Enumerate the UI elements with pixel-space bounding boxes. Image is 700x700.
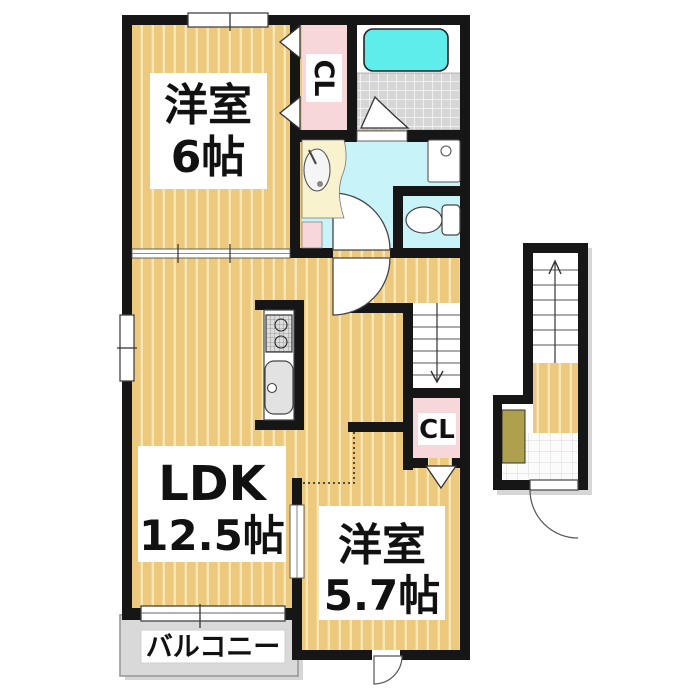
closet-label: CL: [308, 59, 339, 96]
bathtub: [364, 29, 448, 71]
wall: [348, 422, 403, 432]
outer-wall-left: [122, 380, 132, 620]
window: [188, 13, 268, 27]
bath-door-opening: [357, 131, 407, 141]
floor-plan-drawing: 洋室 6帖 LDK 12.5帖 洋室 5.7帖 CL CL バルコニー: [0, 0, 700, 700]
genkan-tile: [525, 433, 578, 480]
outer-wall-bottom: [292, 650, 372, 660]
outer-wall-left: [122, 15, 132, 317]
outer-wall-right: [460, 15, 470, 660]
wall: [390, 248, 470, 258]
room-size-label: 6帖: [171, 132, 246, 183]
toilet-tank: [442, 205, 460, 235]
wall: [292, 578, 302, 650]
entry-door-leaf: [530, 480, 578, 490]
room-size-label: 12.5帖: [139, 511, 285, 560]
room-label: 洋室: [338, 520, 426, 571]
entrance-mat: [502, 410, 525, 463]
balcony-label: バルコニー: [146, 632, 280, 663]
outer-wall-bottom: [400, 650, 470, 660]
toilet-bowl: [406, 207, 442, 233]
vanity-sink: [304, 149, 330, 191]
stair-wall: [493, 395, 502, 490]
kitchen-faucet: [268, 384, 277, 393]
genkan-tile: [502, 463, 525, 480]
stair-wall: [578, 243, 588, 490]
room-label: LDK: [158, 456, 267, 512]
washer-drain: [441, 146, 451, 156]
sink-drain: [317, 181, 323, 187]
room-size-label: 5.7帖: [324, 571, 440, 620]
closet-label: CL: [419, 415, 455, 445]
stove: [266, 315, 292, 352]
wall: [413, 388, 460, 398]
kitchen-wall: [294, 300, 304, 430]
room-door-arc: [374, 656, 402, 684]
entry-door-arc: [530, 490, 578, 538]
entry-landing-floor: [533, 363, 578, 433]
stair-wall: [523, 243, 533, 404]
balcony-window: [141, 606, 285, 621]
room-label: 洋室: [164, 80, 252, 131]
wall: [292, 478, 302, 505]
cabinet: [302, 222, 322, 248]
wall: [403, 303, 413, 470]
ldk-bottom-wall: [122, 608, 143, 620]
toilet-wall: [393, 186, 460, 196]
wall: [347, 15, 357, 135]
wall: [403, 458, 428, 468]
floor-plan: 洋室 6帖 LDK 12.5帖 洋室 5.7帖 CL CL バルコニー: [0, 0, 700, 700]
wall: [292, 248, 333, 258]
stair-wall: [493, 480, 530, 490]
